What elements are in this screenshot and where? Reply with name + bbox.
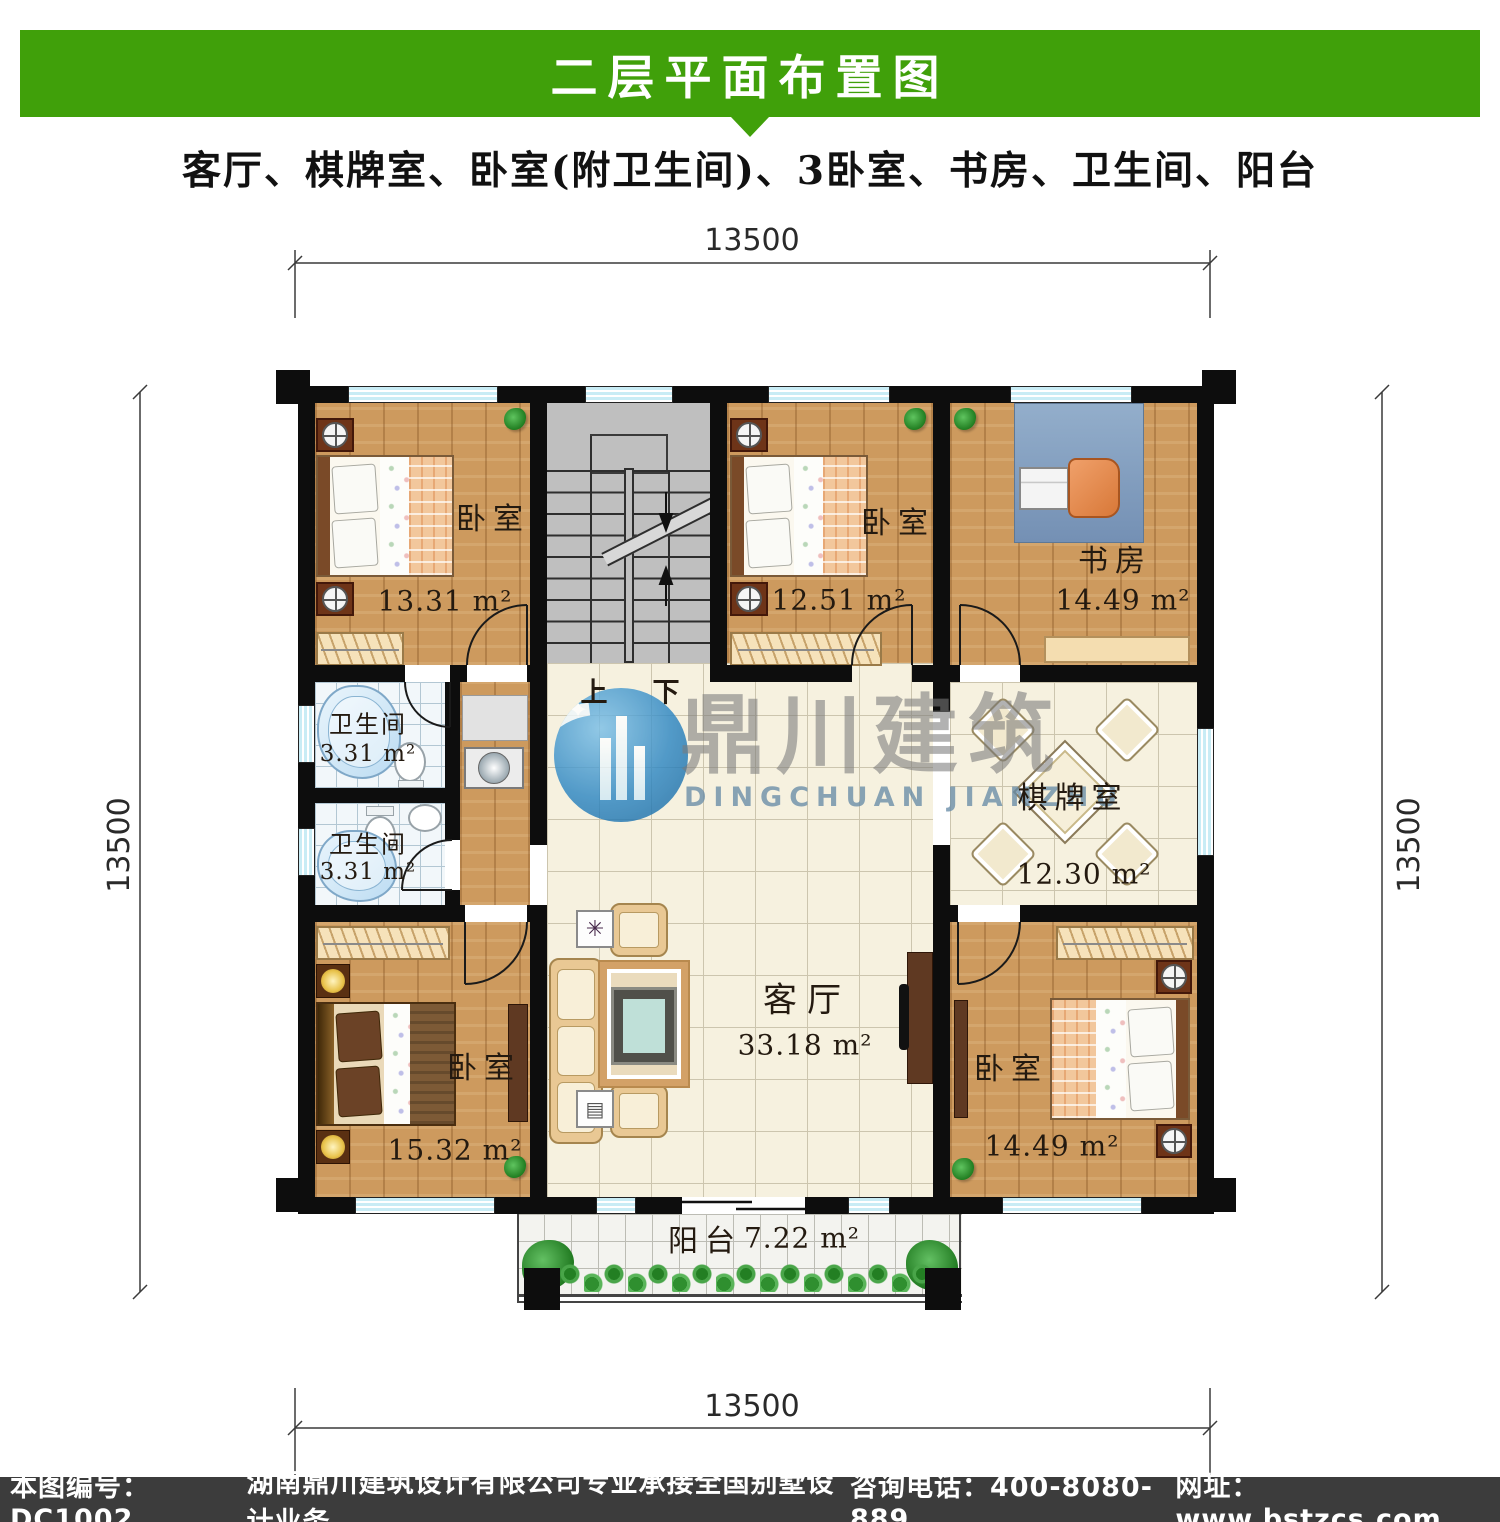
window — [768, 386, 890, 403]
balcony-rail-outer — [517, 1301, 962, 1303]
bed-bottom-right — [1050, 998, 1190, 1120]
balcony-pillar-right — [925, 1268, 961, 1310]
bed-bottom-left — [316, 1002, 456, 1126]
wall-bath-divider — [298, 788, 460, 803]
tv-icon — [899, 984, 909, 1050]
room-label-bedroom-bottom-left: 卧室 — [447, 1043, 521, 1087]
room-label-bathroom-1: 卫生间 — [329, 705, 407, 740]
armchair-cushion — [619, 1093, 659, 1129]
dimension-right: 13500 — [1392, 797, 1427, 892]
nightstand — [730, 582, 768, 616]
room-label-bedroom-top-middle: 卧室 — [861, 498, 935, 542]
wall-interior — [298, 665, 405, 682]
stair-rail — [624, 468, 634, 663]
pillow — [1127, 1007, 1174, 1058]
room-area-bathroom-2: 3.31 m² — [320, 859, 417, 885]
bed-headboard — [318, 457, 330, 575]
wall-stair-left — [530, 386, 547, 682]
armchair-cushion — [619, 912, 659, 948]
balcony-rail — [517, 1294, 962, 1297]
stair-edge — [668, 470, 670, 663]
room-area-bedroom-top-middle: 12.51 m² — [772, 584, 907, 617]
bed-top-left — [316, 455, 454, 577]
floor-plan-page: 二层平面布置图 客厅、棋牌室、卧室(附卫生间)、3卧室、书房、卫生间、阳台 — [0, 0, 1500, 1522]
footer-website: 网址：www.bstzcs.com — [1175, 1465, 1490, 1522]
window — [298, 705, 315, 763]
room-label-bedroom-bottom-right: 卧室 — [974, 1044, 1048, 1088]
bed-headboard — [1176, 1000, 1188, 1118]
pillow — [745, 464, 792, 515]
stairs-down-label: 下 — [653, 671, 680, 710]
dimension-bottom: 13500 — [704, 1389, 799, 1424]
tv-cabinet — [907, 952, 933, 1084]
washer-drum-icon — [478, 752, 510, 784]
wall-interior — [1020, 905, 1197, 922]
sliding-door-gap — [682, 1197, 805, 1214]
wall-bedroom-bl-right — [530, 905, 547, 1197]
window — [585, 386, 673, 403]
wall-interior — [1020, 665, 1197, 682]
footer-company: 湖南鼎川建筑设计有限公司专业承接全国别墅设计业务 — [247, 1461, 850, 1522]
watermark-name: 鼎川建筑 — [680, 692, 1064, 780]
round-table-icon — [736, 586, 762, 612]
study-chair — [1068, 458, 1120, 518]
wall-chess-left-lower — [933, 845, 950, 1197]
room-area-bedroom-bottom-left: 15.32 m² — [388, 1134, 523, 1167]
round-table-icon — [1161, 1128, 1187, 1154]
bed-headboard — [732, 457, 744, 575]
wall-bath1-right — [445, 682, 460, 788]
armchair — [610, 1084, 668, 1138]
bed-pillows — [330, 457, 380, 575]
bed-headboard — [318, 1004, 334, 1124]
wall-bath2-right-upper — [445, 803, 460, 840]
wall-interior — [298, 905, 465, 922]
logo-building-bar — [634, 746, 645, 800]
logo-building-bar — [616, 716, 627, 800]
window — [848, 1197, 890, 1214]
room-label-chess-room: 棋牌室 — [1018, 773, 1129, 817]
bed-pillows — [744, 457, 794, 575]
sofa-cushion — [557, 1026, 595, 1077]
bed-sheet — [1096, 1000, 1126, 1118]
balcony-plant-band — [540, 1260, 936, 1292]
bed-blanket — [823, 457, 866, 575]
room-area-bedroom-top-left: 13.31 m² — [378, 585, 513, 618]
coffee-table — [614, 990, 674, 1062]
stairs-up-label: 上 — [581, 671, 608, 710]
bed-pillows — [334, 1004, 384, 1124]
sofa-cushion — [557, 969, 595, 1020]
nightstand — [316, 582, 354, 616]
room-label-study: 书房 — [1078, 536, 1152, 580]
room-area-bedroom-bottom-right: 14.49 m² — [985, 1130, 1120, 1163]
side-table: ▤ — [576, 1090, 614, 1128]
room-area-balcony: 7.22 m² — [744, 1222, 860, 1255]
window — [355, 1197, 495, 1214]
bed-top-middle — [730, 455, 868, 577]
dimension-left: 13500 — [102, 797, 137, 892]
round-table-icon — [322, 422, 348, 448]
bedside-lamp-icon — [316, 1130, 350, 1164]
window — [1002, 1197, 1142, 1214]
toilet-tank — [366, 806, 394, 816]
wall-stair-right — [710, 386, 727, 682]
nightstand — [1156, 960, 1192, 994]
tv-cabinet — [954, 1000, 968, 1118]
footer-drawing-number: 本图编号：DC1002 — [10, 1465, 247, 1522]
round-table-icon — [1161, 964, 1187, 990]
sink — [408, 804, 442, 832]
room-area-chess-room: 12.30 m² — [1017, 858, 1152, 891]
window — [298, 828, 315, 876]
pillow — [331, 464, 378, 515]
room-area-bathroom-1: 3.31 m² — [320, 741, 417, 767]
study-desk — [1019, 467, 1069, 510]
window — [596, 1197, 636, 1214]
bedside-lamp-icon — [316, 964, 350, 998]
wall-bath2-right-lower — [445, 890, 460, 905]
window — [1010, 386, 1132, 403]
banner-pointer — [731, 117, 769, 137]
balcony-side-left — [517, 1214, 519, 1303]
study-cabinet — [1044, 636, 1190, 663]
wall-study-left — [933, 386, 950, 682]
window — [1197, 728, 1214, 856]
balcony-pillar-left — [524, 1268, 560, 1310]
wall-interior — [450, 665, 467, 682]
footer-bar: 本图编号：DC1002 湖南鼎川建筑设计有限公司专业承接全国别墅设计业务 咨询电… — [0, 1477, 1500, 1522]
bed-blanket — [1052, 1000, 1096, 1118]
dimension-top: 13500 — [704, 223, 799, 258]
room-area-study: 14.49 m² — [1056, 584, 1191, 617]
bed-pillows — [1126, 1000, 1176, 1118]
title-banner: 二层平面布置图 — [20, 30, 1480, 117]
page-title: 二层平面布置图 — [551, 39, 950, 108]
bed-blanket — [409, 457, 452, 575]
round-table-icon — [736, 422, 762, 448]
pillow — [331, 518, 378, 569]
room-label-living-room: 客厅 — [763, 973, 851, 1022]
room-area-living-room: 33.18 m² — [738, 1029, 873, 1062]
wardrobe — [730, 632, 882, 666]
corridor-counter — [462, 695, 528, 741]
wall-corridor-right — [530, 682, 547, 845]
washing-machine — [464, 747, 524, 789]
armchair — [610, 903, 668, 957]
pillow — [745, 518, 792, 569]
nightstand — [1156, 1124, 1192, 1158]
room-label-bedroom-top-left: 卧室 — [456, 494, 530, 538]
nightstand — [316, 418, 354, 452]
room-label-bathroom-2: 卫生间 — [329, 825, 407, 860]
wardrobe — [316, 926, 450, 960]
wall-interior — [727, 665, 852, 682]
stair-edge — [590, 436, 592, 663]
side-table-plant: ✳ — [576, 910, 614, 948]
nightstand — [730, 418, 768, 452]
pillow — [335, 1011, 382, 1063]
bed-sheet — [380, 457, 409, 575]
logo-building-bar — [600, 738, 611, 800]
pillow — [1127, 1061, 1174, 1112]
room-label-balcony: 阳台 — [668, 1216, 742, 1260]
footer-phone: 咨询电话：400-8080-889 — [850, 1465, 1175, 1522]
bed-sheet — [384, 1004, 410, 1124]
lamp-glow — [321, 1135, 345, 1159]
bed-sheet — [794, 457, 823, 575]
lamp-glow — [321, 969, 345, 993]
window — [348, 386, 498, 403]
round-table-icon — [322, 586, 348, 612]
pillow — [335, 1066, 382, 1118]
wardrobe — [1056, 926, 1194, 960]
page-subtitle: 客厅、棋牌室、卧室(附卫生间)、3卧室、书房、卫生间、阳台 — [0, 140, 1500, 196]
wardrobe — [316, 632, 404, 666]
toilet-tank — [398, 780, 424, 788]
